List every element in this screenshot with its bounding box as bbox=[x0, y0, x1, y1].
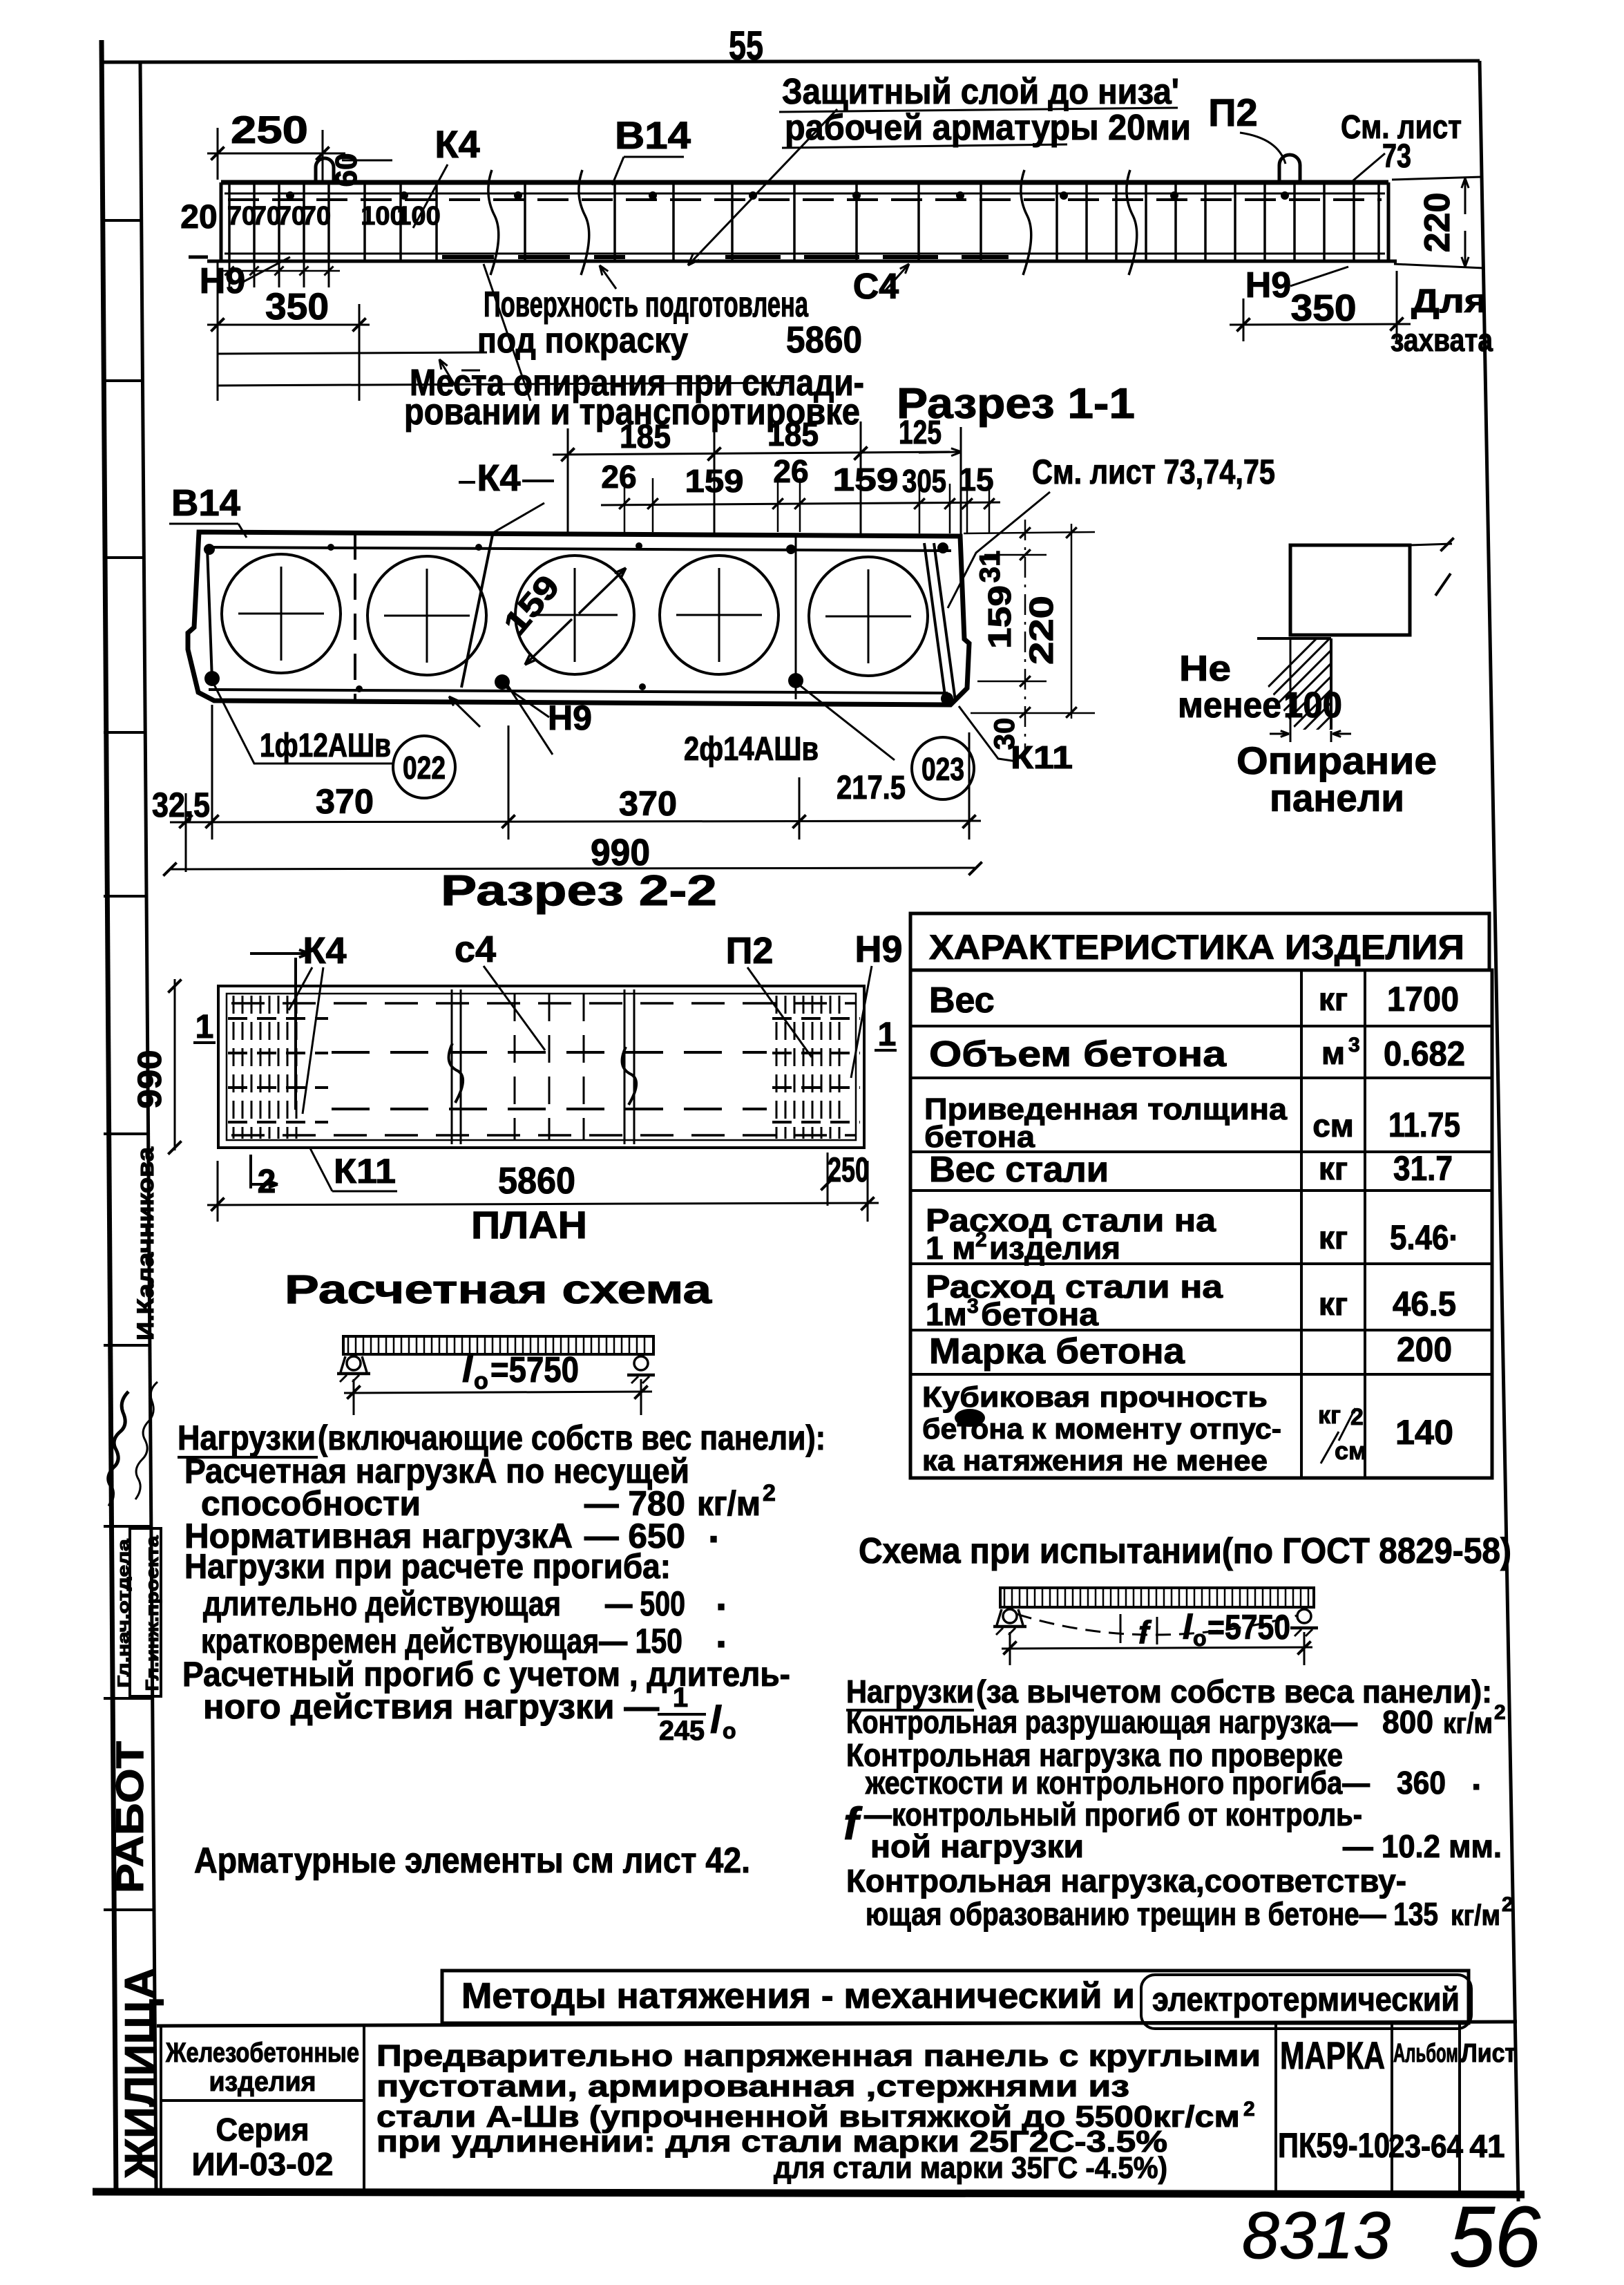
svg-text:Н9: Н9 bbox=[200, 261, 245, 301]
svg-text:МАРКА: МАРКА bbox=[1280, 2033, 1385, 2077]
svg-text:К4: К4 bbox=[434, 122, 479, 166]
svg-text:м: м bbox=[1321, 1035, 1345, 1071]
svg-text:f: f bbox=[1138, 1614, 1152, 1650]
svg-text:— 500: — 500 bbox=[605, 1584, 685, 1623]
svg-text:1 м: 1 м bbox=[926, 1230, 975, 1266]
svg-text:5.46·: 5.46· bbox=[1390, 1218, 1459, 1257]
svg-text:2: 2 bbox=[258, 1164, 276, 1200]
svg-text:3: 3 bbox=[1348, 1034, 1360, 1056]
svg-text:1700: 1700 bbox=[1387, 980, 1459, 1018]
svg-text:.: . bbox=[708, 1506, 719, 1551]
svg-text:250: 250 bbox=[231, 108, 308, 151]
svg-text:П2: П2 bbox=[726, 930, 774, 971]
svg-text:370: 370 bbox=[316, 782, 374, 821]
svg-text:кг: кг bbox=[1319, 1150, 1348, 1186]
svg-text:=5750: =5750 bbox=[1207, 1608, 1290, 1647]
svg-text:П2: П2 bbox=[1208, 91, 1257, 134]
svg-text:0.682: 0.682 bbox=[1384, 1034, 1465, 1073]
svg-text:o: o bbox=[474, 1368, 488, 1394]
svg-text:с4: с4 bbox=[455, 929, 496, 970]
svg-text:55: 55 bbox=[729, 23, 763, 68]
svg-text:245: 245 bbox=[659, 1716, 705, 1746]
svg-text:46.5: 46.5 bbox=[1393, 1284, 1456, 1323]
svg-text:2: 2 bbox=[975, 1229, 987, 1251]
svg-text:кг: кг bbox=[1319, 1286, 1348, 1322]
svg-text:2: 2 bbox=[1494, 1701, 1506, 1724]
svg-text:К4: К4 bbox=[303, 930, 347, 971]
svg-text:l: l bbox=[1183, 1608, 1193, 1647]
svg-text:бетона к моменту отпус-: бетона к моменту отпус- bbox=[922, 1412, 1281, 1445]
svg-text:023: 023 bbox=[921, 751, 964, 787]
svg-text:Для: Для bbox=[1411, 283, 1487, 320]
svg-text:370: 370 bbox=[619, 784, 677, 823]
svg-text:Предварительно напряженная пан: Предварительно напряженная панель с круг… bbox=[376, 2039, 1261, 2073]
svg-text:32,5: 32,5 bbox=[152, 786, 210, 824]
svg-text:ПК59-10: ПК59-10 bbox=[1278, 2126, 1390, 2165]
svg-text:Железобетонные: Железобетонные bbox=[165, 2038, 359, 2068]
svg-text:жесткости и контрольного проги: жесткости и контрольного прогиба— bbox=[865, 1765, 1370, 1801]
svg-text:220: 220 bbox=[1417, 193, 1458, 253]
svg-text:см: см bbox=[1312, 1108, 1354, 1144]
svg-text:1: 1 bbox=[673, 1682, 688, 1713]
svg-text:41: 41 bbox=[1469, 2128, 1504, 2164]
svg-text:.: . bbox=[716, 1611, 727, 1656]
svg-text:кг: кг bbox=[1318, 1401, 1341, 1429]
svg-text:800: 800 bbox=[1382, 1704, 1433, 1740]
svg-text:ной нагрузки: ной нагрузки bbox=[870, 1828, 1084, 1864]
svg-text:длительно действующая: длительно действующая bbox=[203, 1584, 561, 1623]
svg-text:К11: К11 bbox=[334, 1152, 396, 1191]
svg-text:73: 73 bbox=[1382, 138, 1411, 175]
svg-text:Гл.инж.проекта: Гл.инж.проекта bbox=[142, 1535, 162, 1691]
svg-text:140: 140 bbox=[1395, 1413, 1453, 1452]
svg-text:ющая образованию трещин в бето: ющая образованию трещин в бетоне— 135 bbox=[866, 1896, 1438, 1932]
svg-text:l: l bbox=[710, 1698, 722, 1741]
svg-text:159: 159 bbox=[982, 585, 1018, 649]
svg-text:2: 2 bbox=[763, 1480, 776, 1506]
svg-text:под покраску: под покраску bbox=[477, 321, 688, 361]
svg-text:Вес стали: Вес стали bbox=[929, 1150, 1109, 1190]
svg-text:31: 31 bbox=[973, 551, 1006, 583]
svg-text:217.5: 217.5 bbox=[837, 770, 906, 806]
svg-text:ХАРАКТЕРИСТИКА ИЗДЕЛИЯ: ХАРАКТЕРИСТИКА ИЗДЕЛИЯ bbox=[929, 928, 1464, 967]
svg-text:ка натяжения не менее: ка натяжения не менее bbox=[922, 1444, 1268, 1477]
svg-text:159: 159 bbox=[833, 462, 899, 497]
svg-text:менее: менее bbox=[1178, 685, 1281, 726]
svg-text:К4: К4 bbox=[477, 457, 521, 499]
svg-text:И.Калачникова: И.Калачникова bbox=[133, 1146, 159, 1340]
svg-text:Объем бетона: Объем бетона bbox=[929, 1034, 1227, 1074]
svg-text:l: l bbox=[462, 1349, 473, 1390]
svg-text:26: 26 bbox=[601, 459, 636, 495]
svg-text:Марка бетона: Марка бетона bbox=[929, 1331, 1185, 1372]
svg-text:31.7: 31.7 bbox=[1393, 1149, 1453, 1188]
svg-text:кг: кг bbox=[1319, 1220, 1348, 1255]
svg-text:для стали марки 35ГС -4.5%): для стали марки 35ГС -4.5%) bbox=[774, 2151, 1167, 2185]
svg-text:f: f bbox=[843, 1798, 863, 1849]
svg-text:Серия: Серия bbox=[216, 2112, 309, 2147]
svg-text:см: см bbox=[1335, 1437, 1367, 1465]
svg-text:Поверхность подготовлена: Поверхность подготовлена bbox=[484, 285, 809, 325]
svg-text:1м: 1м bbox=[926, 1296, 967, 1332]
svg-text:8313: 8313 bbox=[1242, 2199, 1391, 2273]
svg-text:Н9: Н9 bbox=[854, 929, 902, 970]
svg-text:В14: В14 bbox=[615, 113, 691, 157]
svg-text:В14: В14 bbox=[171, 482, 240, 524]
svg-text:кг/м: кг/м bbox=[1443, 1707, 1493, 1739]
svg-text:360: 360 bbox=[1397, 1765, 1446, 1801]
svg-text:1: 1 bbox=[195, 1009, 214, 1045]
svg-text:15: 15 bbox=[958, 462, 993, 497]
svg-text:5860: 5860 bbox=[498, 1160, 575, 1202]
svg-text:— 10.2 мм.: — 10.2 мм. bbox=[1343, 1828, 1502, 1864]
svg-text:20: 20 bbox=[180, 199, 217, 236]
svg-text:2ф14АШв: 2ф14АШв bbox=[684, 731, 819, 768]
svg-text:Контрольная нагрузка,соответст: Контрольная нагрузка,соответству- bbox=[846, 1863, 1406, 1899]
svg-text:5860: 5860 bbox=[786, 319, 862, 361]
svg-text:Н9: Н9 bbox=[1245, 265, 1291, 305]
svg-text:Расчетная схема: Расчетная схема bbox=[285, 1267, 712, 1312]
svg-text:ЖИЛИЩА: ЖИЛИЩА bbox=[117, 1968, 164, 2179]
svg-text:56: 56 bbox=[1449, 2190, 1540, 2285]
svg-text:пустотами, армированная ,стерж: пустотами, армированная ,стержнями из bbox=[376, 2069, 1129, 2103]
svg-text:159: 159 bbox=[497, 569, 567, 643]
svg-text:200: 200 bbox=[1397, 1330, 1452, 1369]
svg-text:Арматурные элементы см лист 42: Арматурные элементы см лист 42. bbox=[194, 1841, 750, 1881]
svg-text:Контрольная разрушающая нагруз: Контрольная разрушающая нагрузка— bbox=[846, 1704, 1357, 1740]
svg-text:РАБОТ: РАБОТ bbox=[108, 1741, 151, 1893]
svg-text:=5750: =5750 bbox=[490, 1350, 579, 1390]
svg-text:Н9: Н9 bbox=[548, 699, 592, 737]
svg-text:панели: панели bbox=[1270, 776, 1404, 819]
svg-text:Защитный слой до низа': Защитный слой до низа' bbox=[782, 72, 1179, 112]
svg-text:бетона: бетона bbox=[924, 1120, 1035, 1154]
svg-text:022: 022 bbox=[403, 750, 446, 786]
svg-text:70: 70 bbox=[302, 202, 331, 231]
svg-text:К11: К11 bbox=[1011, 739, 1073, 775]
svg-text:305: 305 bbox=[902, 463, 946, 499]
svg-text:изделия: изделия bbox=[989, 1230, 1120, 1266]
svg-text:23-64: 23-64 bbox=[1388, 2128, 1463, 2164]
svg-text:100: 100 bbox=[1283, 685, 1342, 726]
svg-text:ного действия нагрузки —: ного действия нагрузки — bbox=[203, 1687, 659, 1726]
svg-text:o: o bbox=[723, 1718, 736, 1743]
svg-text:бетона: бетона bbox=[981, 1296, 1098, 1332]
svg-text:Лист: Лист bbox=[1461, 2039, 1516, 2068]
svg-text:185: 185 bbox=[767, 417, 819, 453]
svg-text:ПЛАН: ПЛАН bbox=[471, 1203, 587, 1246]
svg-text:350: 350 bbox=[265, 286, 329, 328]
svg-text:26: 26 bbox=[773, 453, 808, 489]
svg-text:кг/м: кг/м bbox=[1451, 1899, 1500, 1931]
svg-text:захвата: захвата bbox=[1391, 322, 1493, 358]
svg-text:159: 159 bbox=[685, 463, 744, 499]
svg-text:350: 350 bbox=[1291, 287, 1357, 329]
svg-text:изделия: изделия bbox=[209, 2067, 316, 2097]
svg-text:220: 220 bbox=[1024, 596, 1060, 665]
svg-text:См. лист 73,74,75: См. лист 73,74,75 bbox=[1032, 453, 1275, 491]
svg-text:С4: С4 bbox=[853, 267, 899, 307]
svg-text:990: 990 bbox=[132, 1050, 169, 1109]
svg-text:2: 2 bbox=[1502, 1893, 1513, 1916]
svg-text:Не: Не bbox=[1179, 649, 1231, 689]
svg-text:2: 2 bbox=[1350, 1404, 1364, 1430]
svg-text:Альбом: Альбом bbox=[1393, 2039, 1458, 2068]
svg-text:11.75: 11.75 bbox=[1388, 1106, 1460, 1144]
svg-text:Кубиковая прочность: Кубиковая прочность bbox=[922, 1381, 1268, 1413]
svg-text:Разрез 2-2: Разрез 2-2 bbox=[441, 867, 717, 915]
svg-text:ИИ-03-02: ИИ-03-02 bbox=[192, 2146, 334, 2182]
svg-text:кг: кг bbox=[1319, 981, 1348, 1017]
svg-text:Нагрузки при расчете прогиба:: Нагрузки при расчете прогиба: bbox=[184, 1547, 671, 1586]
svg-text:60: 60 bbox=[329, 153, 363, 187]
svg-text:185: 185 bbox=[620, 419, 671, 455]
svg-text:1: 1 bbox=[878, 1016, 897, 1053]
svg-text:электротермический: электротермический bbox=[1152, 1982, 1460, 2018]
svg-text:3: 3 bbox=[967, 1295, 979, 1318]
svg-text:—контрольный прогиб от контрол: —контрольный прогиб от контроль- bbox=[864, 1796, 1362, 1832]
svg-text:2: 2 bbox=[1243, 2098, 1255, 2121]
svg-text:250: 250 bbox=[828, 1150, 869, 1189]
svg-text:.: . bbox=[1471, 1758, 1481, 1798]
svg-text:рабочей арматуры 20ми: рабочей арматуры 20ми bbox=[785, 108, 1191, 148]
svg-text:Схема при испытании(по ГОСТ 88: Схема при испытании(по ГОСТ 8829-58) bbox=[859, 1531, 1511, 1571]
svg-text:1ф12АШв: 1ф12АШв bbox=[260, 728, 391, 764]
svg-text:Вес: Вес bbox=[929, 980, 995, 1021]
svg-text:125: 125 bbox=[899, 415, 942, 451]
svg-text:Методы натяжения - механически: Методы натяжения - механический и bbox=[461, 1976, 1135, 2016]
svg-text:кг/м: кг/м bbox=[697, 1484, 761, 1523]
